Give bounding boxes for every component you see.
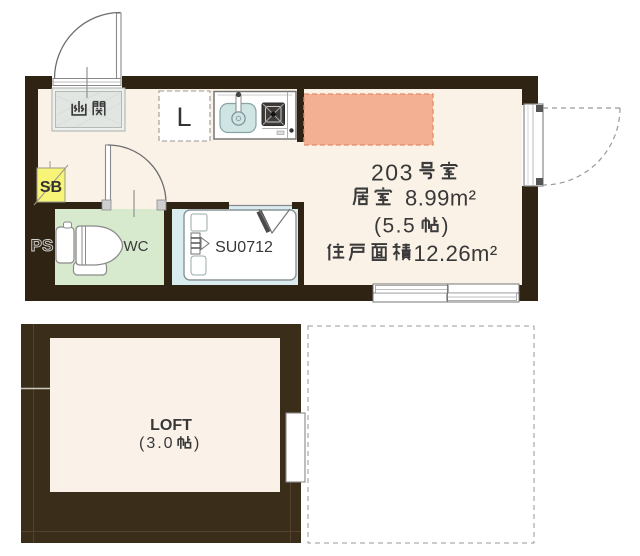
svg-text:SB: SB: [40, 179, 62, 196]
svg-text:SU0712: SU0712: [215, 239, 273, 256]
svg-text:203: 203: [371, 160, 414, 186]
svg-text:L: L: [176, 102, 191, 132]
svg-text:8.99m²: 8.99m²: [405, 186, 476, 211]
svg-text:(3.0: (3.0: [139, 435, 175, 452]
svg-text:): ): [194, 435, 199, 452]
svg-text:WC: WC: [124, 238, 149, 255]
svg-text:LOFT: LOFT: [150, 417, 192, 434]
svg-text:PS: PS: [31, 236, 54, 255]
svg-text:(5.5: (5.5: [374, 215, 416, 238]
svg-text:12.26m²: 12.26m²: [414, 241, 498, 266]
svg-text:): ): [442, 215, 449, 238]
